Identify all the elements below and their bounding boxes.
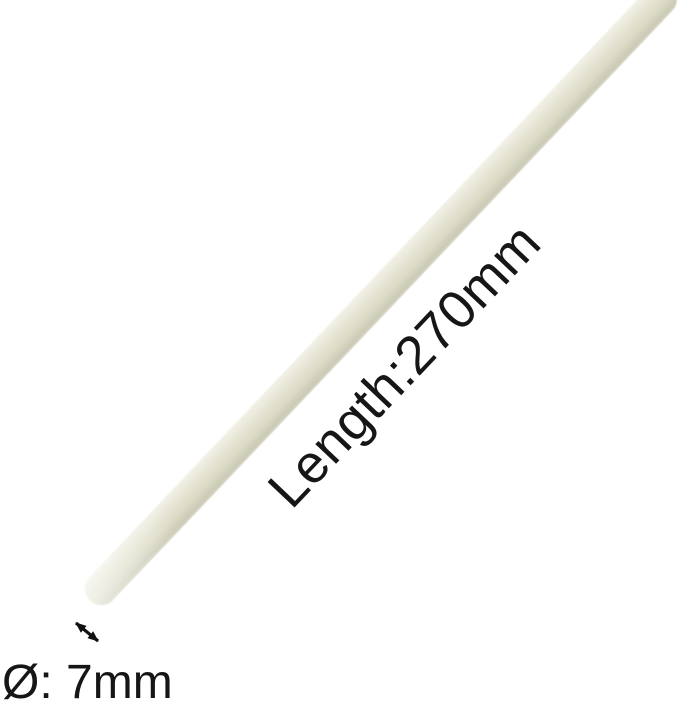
glue-stick (78, 0, 679, 612)
diameter-arrow-icon (60, 605, 114, 657)
diameter-label: Ø: 7mm (2, 659, 173, 707)
product-image: Length:270mm Ø: 7mm (0, 0, 679, 708)
